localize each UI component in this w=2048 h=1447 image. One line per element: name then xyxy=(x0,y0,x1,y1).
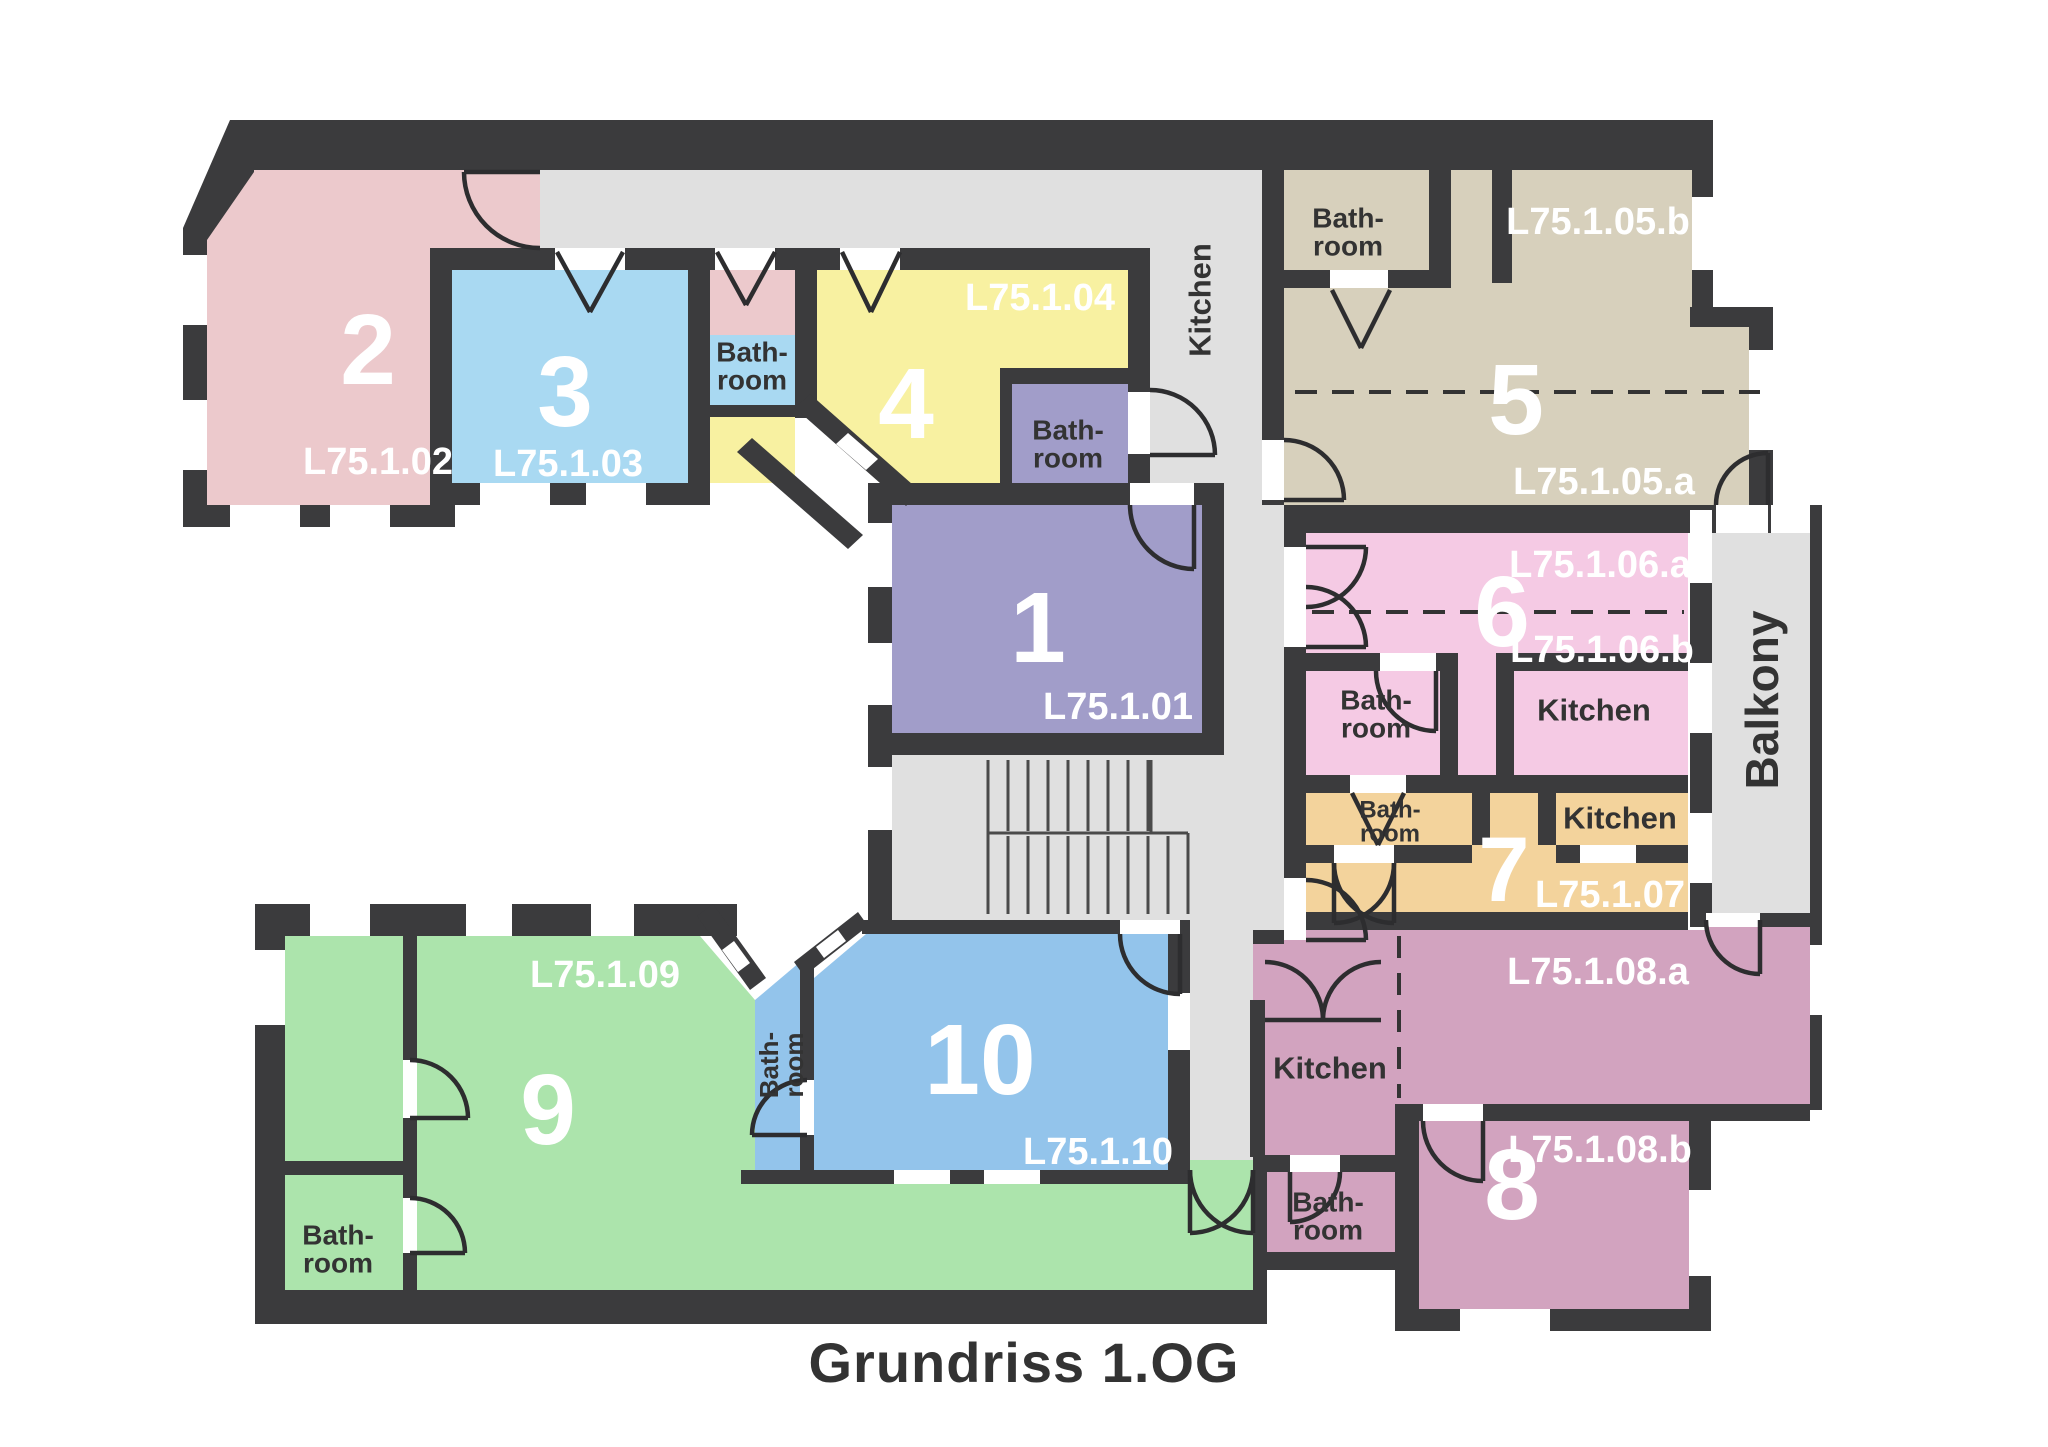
win-r1-left-3 xyxy=(868,767,892,830)
label-bath9-2: room xyxy=(303,1248,373,1279)
win-r2-left-1 xyxy=(183,255,207,325)
win-r9-top-3 xyxy=(591,904,634,936)
win-top-right xyxy=(1692,197,1713,270)
label-r6b-code: L75.1.06.b xyxy=(1510,629,1694,671)
win-r9-left xyxy=(255,950,285,1025)
hall8-stub xyxy=(1253,930,1284,944)
label-r5-number: 5 xyxy=(1488,344,1544,456)
gap-r6-doors xyxy=(1284,547,1306,647)
label-r7-code: L75.1.07 xyxy=(1535,874,1685,916)
label-bath6-1: Bath- xyxy=(1340,685,1412,716)
label-bath9-1: Bath- xyxy=(302,1220,374,1251)
gap-r1-door xyxy=(1130,483,1194,505)
gap-balcony-door xyxy=(1716,505,1768,533)
label-r2-code: L75.1.02 xyxy=(303,441,453,483)
kitchen8-left xyxy=(1250,1000,1265,1157)
label-r8a-code: L75.1.08.a xyxy=(1507,951,1690,993)
label-r1-code: L75.1.01 xyxy=(1043,686,1193,728)
bath23-bottom xyxy=(710,405,795,417)
label-kitchen-corr: Kitchen xyxy=(1183,243,1218,357)
win-r9-top-1 xyxy=(310,904,370,936)
r1-bottom xyxy=(870,733,1224,755)
label-r1-number: 1 xyxy=(1010,572,1066,684)
gap-closet9-door xyxy=(403,1060,417,1118)
r8b-left xyxy=(1395,1104,1419,1327)
kitchen7-stub xyxy=(1538,793,1556,845)
win-r2-left-2 xyxy=(183,400,207,470)
closet9-right xyxy=(403,936,417,1161)
top-wall xyxy=(230,120,1713,170)
win-r1-left-1 xyxy=(868,523,892,587)
bath-23-upper xyxy=(710,270,795,335)
label-bath23-2: room xyxy=(717,365,787,396)
bath23-right xyxy=(795,248,817,418)
label-bath10-2: room xyxy=(779,1033,809,1098)
r3-right xyxy=(688,248,710,505)
label-bath7-2: room xyxy=(1360,821,1420,848)
label-bath5-2: room xyxy=(1313,231,1383,262)
bath5-right xyxy=(1429,170,1451,288)
outer-right xyxy=(1810,505,1822,1110)
label-bath5-1: Bath- xyxy=(1312,203,1384,234)
label-r7-number: 7 xyxy=(1478,819,1529,921)
bath8-bottom xyxy=(1265,1252,1395,1270)
label-bath8-2: room xyxy=(1293,1215,1363,1246)
label-kitchen8: Kitchen xyxy=(1273,1051,1387,1086)
bath1-top xyxy=(1000,368,1128,384)
kitchen-corr-left xyxy=(1128,248,1150,505)
win-r3-bot-2 xyxy=(586,483,646,505)
label-r10-number: 10 xyxy=(924,1004,1035,1116)
gap-bath6-door xyxy=(1380,653,1436,671)
label-r4-number: 4 xyxy=(878,348,934,460)
gap-bath8-door xyxy=(1290,1155,1340,1172)
win-r3-bot-1 xyxy=(480,483,550,505)
label-r9-number: 9 xyxy=(520,1054,576,1166)
void-diagonal xyxy=(737,438,863,549)
bath9-top xyxy=(255,1161,417,1175)
label-r4-code: L75.1.04 xyxy=(965,277,1115,319)
win-outer-right xyxy=(1810,945,1822,1015)
win-r8b-bottom xyxy=(1460,1309,1550,1331)
win-r9-top-2 xyxy=(466,904,512,936)
win-r10-right xyxy=(1168,993,1190,1050)
win-bal-1 xyxy=(1690,510,1712,583)
label-r5a-code: L75.1.05.a xyxy=(1513,461,1696,503)
gap-r8b-door xyxy=(1423,1104,1483,1121)
label-r3-code: L75.1.03 xyxy=(493,443,643,485)
label-r3-number: 3 xyxy=(537,336,593,448)
gap-r7-door xyxy=(1284,878,1306,940)
label-balkony: Balkony xyxy=(1736,610,1788,789)
label-bath6-2: room xyxy=(1341,713,1411,744)
bath6-right xyxy=(1440,653,1458,775)
bath1-left xyxy=(1000,384,1012,500)
label-r9-code: L75.1.09 xyxy=(530,954,680,996)
label-r2-number: 2 xyxy=(340,294,396,406)
gap-kitchen7-door xyxy=(1580,845,1636,863)
gap-bath9-door xyxy=(403,1198,417,1253)
kitchen6-stub xyxy=(1496,653,1514,775)
bottom-wall xyxy=(255,1290,1255,1324)
win-bal-3 xyxy=(1690,813,1712,883)
label-r6a-code: L75.1.06.a xyxy=(1509,544,1692,586)
r1-right xyxy=(1202,483,1224,755)
label-kitchen7: Kitchen xyxy=(1563,801,1677,836)
label-bath8-1: Bath- xyxy=(1292,1187,1364,1218)
win-r2-bot-2 xyxy=(330,505,390,527)
label-bath1-2: room xyxy=(1033,443,1103,474)
win-r10-bot-1 xyxy=(894,1170,950,1184)
win-r8b-right xyxy=(1689,1190,1711,1276)
win-r1-left-2 xyxy=(868,643,892,705)
label-bath23-1: Bath- xyxy=(716,337,788,368)
gap-bath5-door xyxy=(1330,270,1388,288)
gap-bath1-door xyxy=(1128,392,1150,454)
gap-bath7-door xyxy=(1334,845,1394,863)
label-bath7-1: Bath- xyxy=(1359,797,1420,824)
floor-plan-canvas: 2L75.1.023L75.1.03Bath-room4L75.1.04Kitc… xyxy=(0,0,2048,1447)
gap-r10-door xyxy=(1120,920,1180,934)
gap-bal8-door xyxy=(1706,913,1760,927)
r8b-bottom xyxy=(1395,1309,1711,1331)
r8a-bottom-east xyxy=(1706,1104,1810,1121)
label-r8b-code: L75.1.08.b xyxy=(1508,1129,1692,1171)
win-bal-2 xyxy=(1690,663,1712,733)
label-r10-code: L75.1.10 xyxy=(1023,1131,1173,1173)
win-r2-bot-1 xyxy=(230,505,300,527)
gap-bath7-vdoor xyxy=(1350,775,1406,793)
win-r5-right xyxy=(1749,350,1773,450)
plan-title: Grundriss 1.OG xyxy=(0,1330,2048,1395)
gap-r5-door xyxy=(1262,440,1284,500)
floor-plan-svg: 2L75.1.023L75.1.03Bath-room4L75.1.04Kitc… xyxy=(0,0,2048,1447)
label-bath1-1: Bath- xyxy=(1032,415,1104,446)
label-r5b-code: L75.1.05.b xyxy=(1506,201,1690,243)
label-kitchen6: Kitchen xyxy=(1537,693,1651,728)
